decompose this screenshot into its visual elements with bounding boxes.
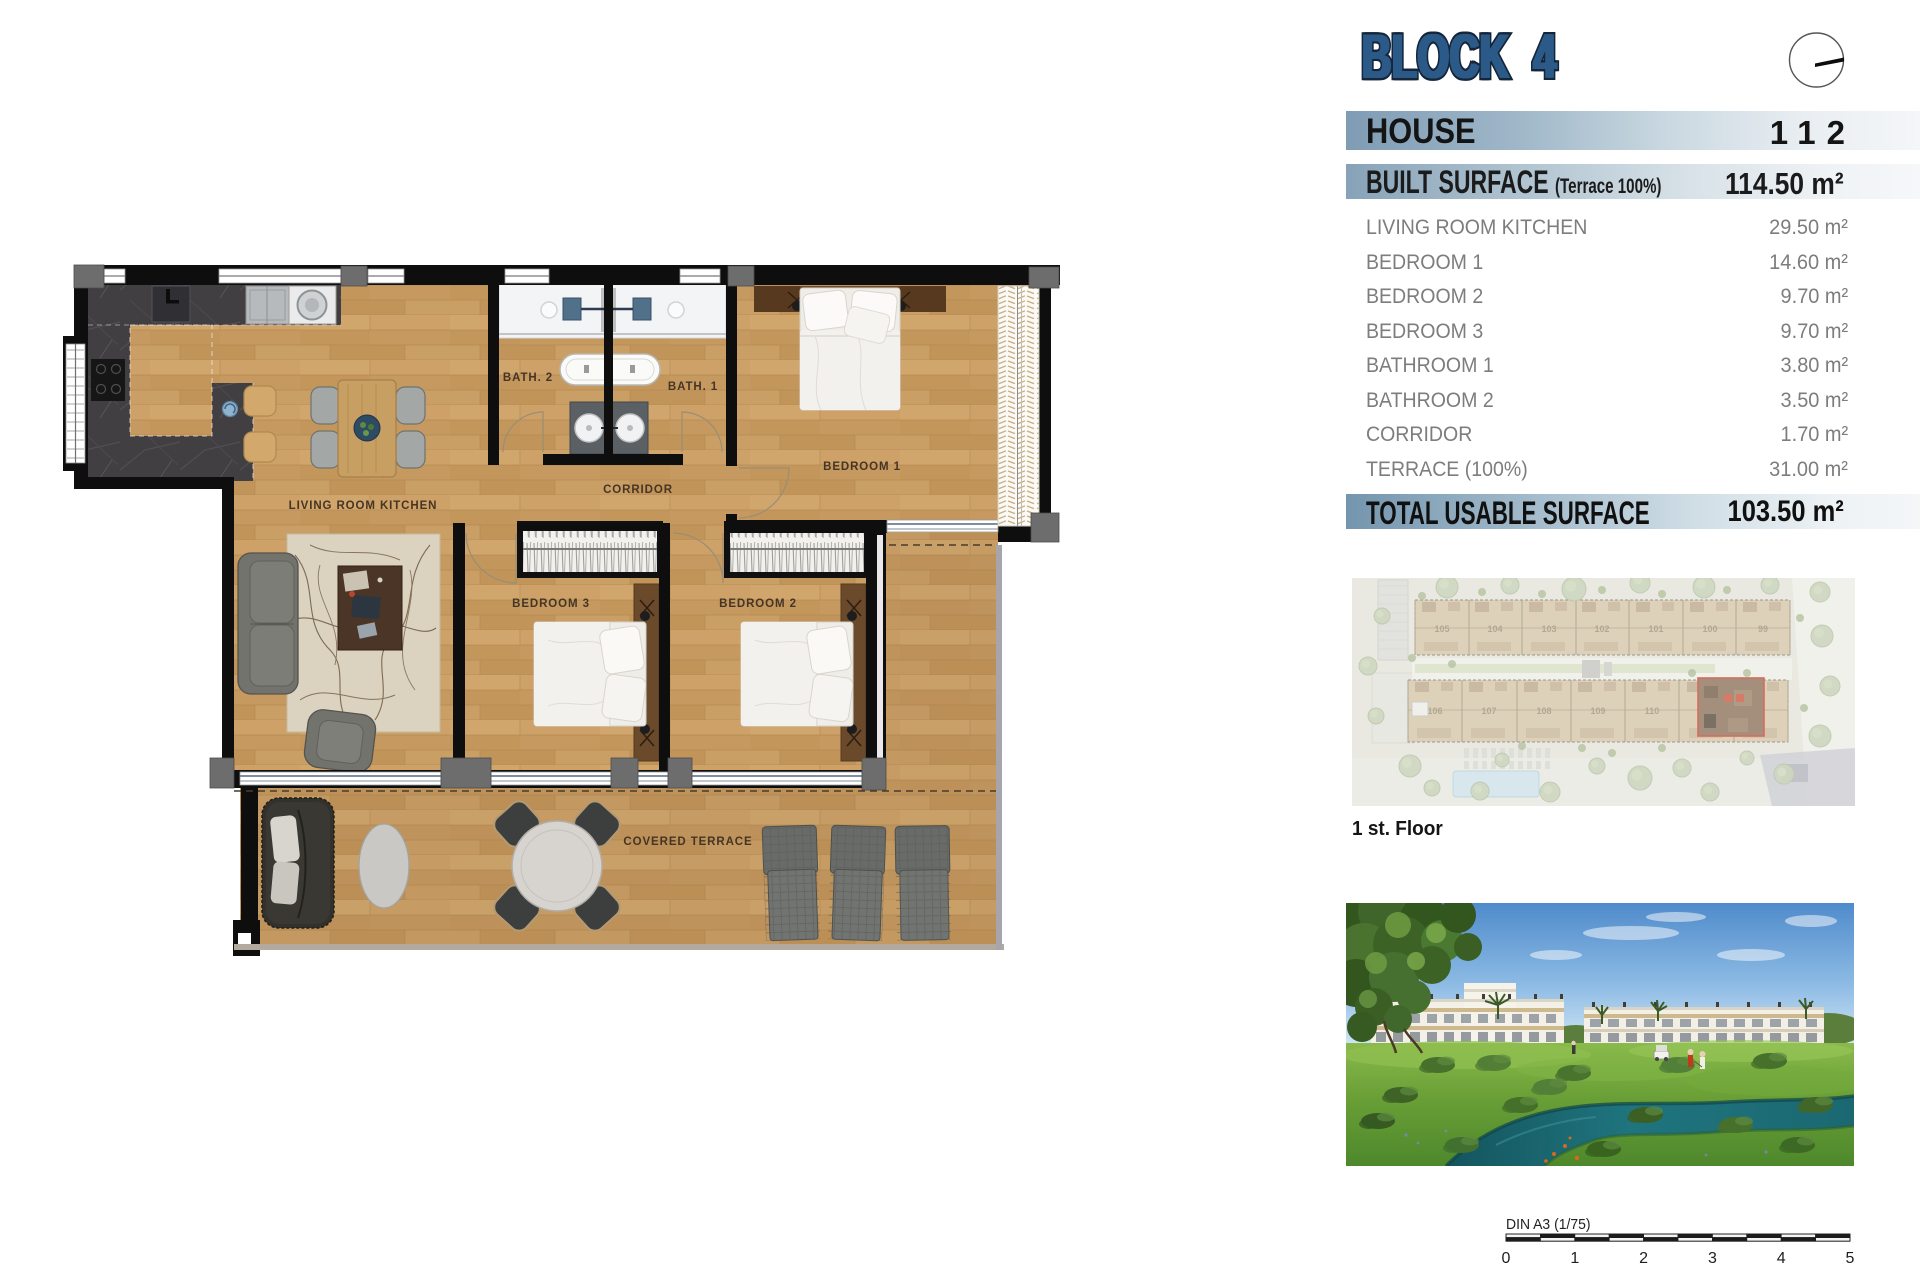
svg-text:BLOCK 4: BLOCK 4	[1362, 26, 1557, 92]
svg-text:BATH. 2: BATH. 2	[503, 372, 553, 384]
svg-text:0: 0	[1502, 1250, 1511, 1267]
svg-text:CORRIDOR: CORRIDOR	[603, 484, 673, 496]
svg-text:2: 2	[1639, 1250, 1648, 1267]
svg-text:1: 1	[1570, 1250, 1579, 1267]
svg-text:BATH. 1: BATH. 1	[668, 381, 718, 393]
svg-text:4: 4	[1777, 1250, 1786, 1267]
svg-text:5: 5	[1846, 1250, 1855, 1267]
svg-text:BEDROOM 2: BEDROOM 2	[719, 598, 797, 610]
svg-text:3: 3	[1708, 1250, 1717, 1267]
svg-text:LIVING ROOM KITCHEN: LIVING ROOM KITCHEN	[289, 500, 438, 512]
svg-text:BEDROOM 3: BEDROOM 3	[512, 598, 590, 610]
svg-text:COVERED TERRACE: COVERED TERRACE	[623, 836, 752, 848]
svg-text:BEDROOM 1: BEDROOM 1	[823, 461, 901, 473]
